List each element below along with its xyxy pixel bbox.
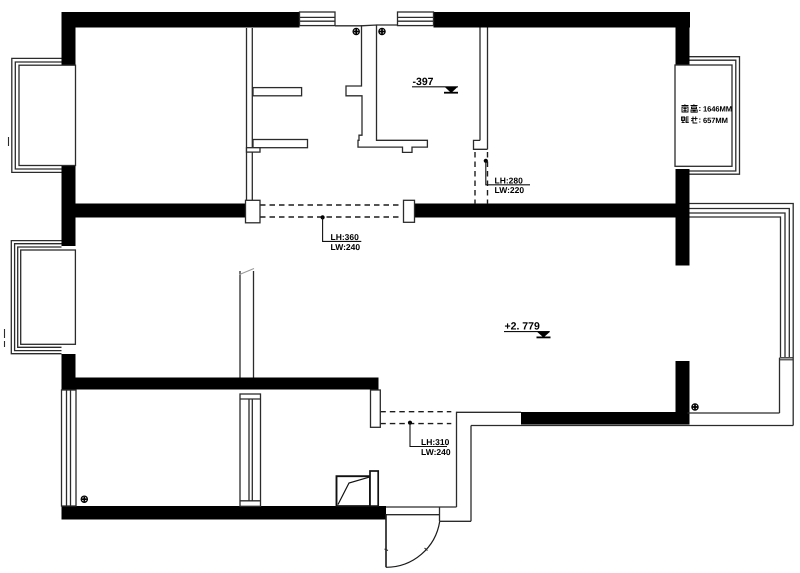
svg-text::: : [699,104,702,113]
svg-text:LH:360: LH:360 [331,232,360,242]
svg-text:LH:280: LH:280 [495,175,524,185]
svg-text:LW:240: LW:240 [331,242,361,252]
svg-text:LW:240: LW:240 [421,447,451,457]
svg-text:LW:220: LW:220 [495,185,525,195]
svg-text:1646MM: 1646MM [703,105,732,114]
svg-text:-397: -397 [413,76,434,88]
svg-text:657MM: 657MM [703,116,728,125]
svg-text:+2. 779: +2. 779 [505,321,540,333]
svg-text:LH:310: LH:310 [421,437,450,447]
svg-text::: : [699,116,702,125]
